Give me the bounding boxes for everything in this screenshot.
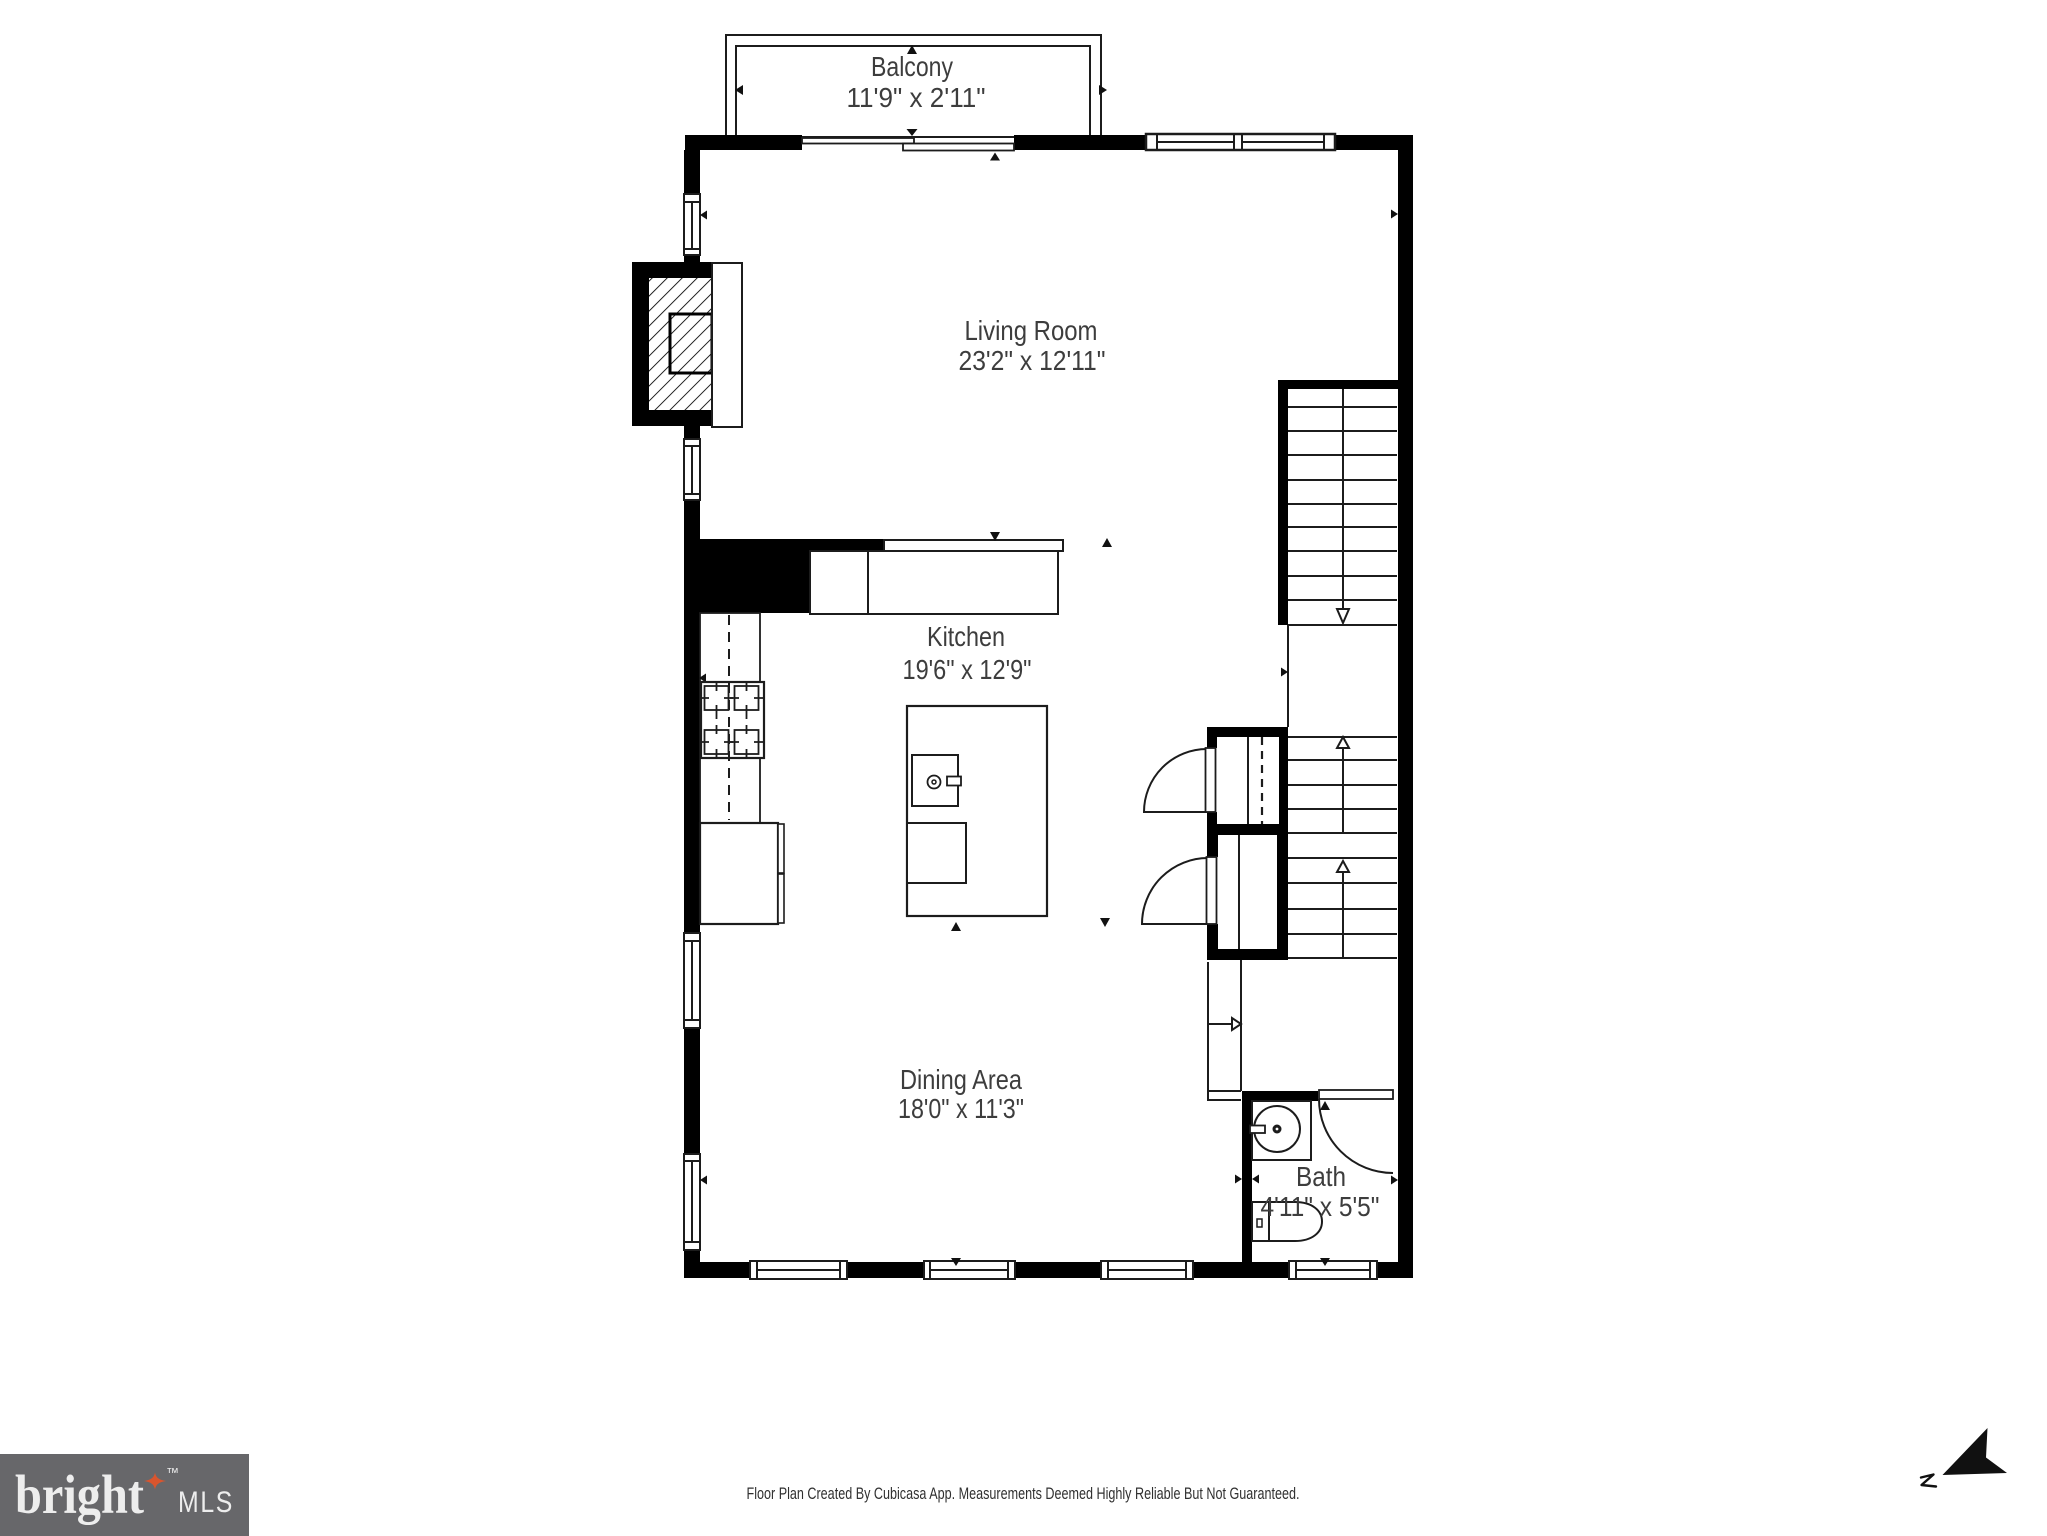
svg-text:bright: bright xyxy=(15,1464,145,1525)
svg-text:11'9" x 2'11": 11'9" x 2'11" xyxy=(847,82,986,113)
svg-text:4'11" x 5'5": 4'11" x 5'5" xyxy=(1261,1191,1380,1222)
svg-text:Kitchen: Kitchen xyxy=(927,621,1005,652)
svg-text:™: ™ xyxy=(166,1465,179,1480)
svg-text:Bath: Bath xyxy=(1296,1161,1346,1192)
svg-text:Living Room: Living Room xyxy=(965,315,1098,346)
svg-text:Balcony: Balcony xyxy=(871,51,953,82)
svg-text:Dining Area: Dining Area xyxy=(900,1064,1023,1095)
svg-text:18'0" x 11'3": 18'0" x 11'3" xyxy=(898,1093,1024,1124)
svg-text:19'6" x 12'9": 19'6" x 12'9" xyxy=(903,654,1032,685)
svg-text:23'2" x 12'11": 23'2" x 12'11" xyxy=(959,345,1106,376)
svg-text:Floor Plan Created By Cubicasa: Floor Plan Created By Cubicasa App. Meas… xyxy=(747,1485,1300,1503)
svg-text:MLS: MLS xyxy=(178,1486,234,1519)
